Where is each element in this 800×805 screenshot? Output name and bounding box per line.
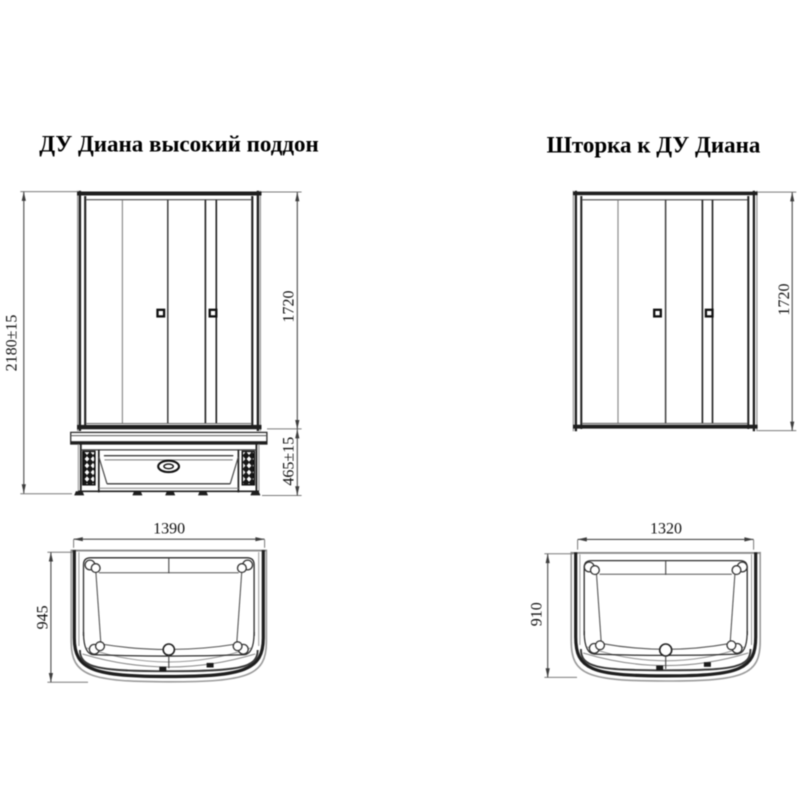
- svg-text:1720: 1720: [776, 284, 793, 316]
- svg-text:945: 945: [35, 605, 52, 629]
- svg-text:Шторка к ДУ Диана: Шторка к ДУ Диана: [547, 133, 761, 158]
- svg-text:910: 910: [529, 602, 546, 626]
- svg-text:465±15: 465±15: [280, 437, 297, 486]
- svg-text:1320: 1320: [650, 521, 682, 538]
- svg-text:2180±15: 2180±15: [3, 315, 20, 372]
- svg-text:1390: 1390: [153, 521, 185, 538]
- svg-text:1720: 1720: [280, 291, 297, 323]
- svg-text:ДУ Диана высокий поддон: ДУ Диана высокий поддон: [39, 132, 319, 157]
